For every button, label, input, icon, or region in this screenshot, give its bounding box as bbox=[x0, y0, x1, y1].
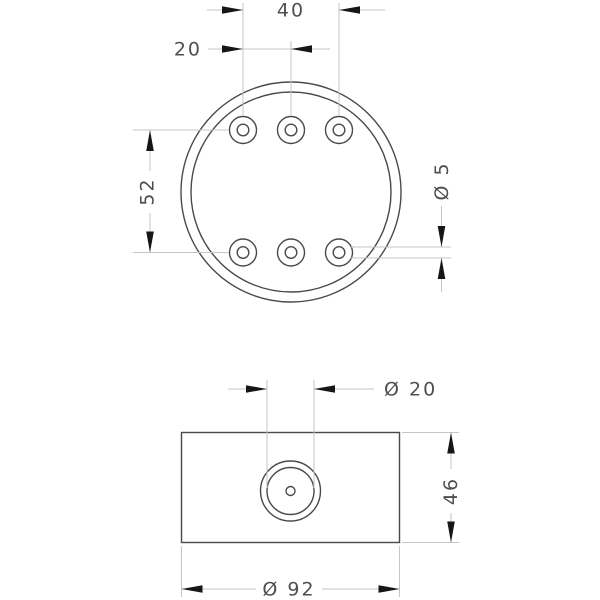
arrowhead bbox=[447, 522, 455, 543]
dimension-label-40: 40 bbox=[277, 0, 305, 22]
arrowhead bbox=[246, 385, 267, 393]
arrowhead bbox=[146, 232, 154, 253]
hole-counterbore bbox=[230, 239, 257, 266]
hole-top-right bbox=[326, 117, 353, 144]
hole-counterbore bbox=[278, 117, 305, 144]
arrowhead bbox=[222, 6, 243, 14]
dimension-dia20: Ø 20 bbox=[228, 379, 437, 489]
hole-bore bbox=[285, 247, 297, 259]
arrowhead bbox=[339, 6, 360, 14]
boss-bore-circle bbox=[267, 468, 314, 515]
hole-top-left bbox=[230, 117, 257, 144]
dimension-dia92: Ø 92 bbox=[182, 546, 400, 600]
hole-bottom-center bbox=[278, 239, 305, 266]
hole-bottom-right bbox=[326, 239, 353, 266]
arrowhead bbox=[314, 385, 335, 393]
arrowhead bbox=[222, 45, 243, 53]
boss-outer-circle bbox=[261, 461, 321, 521]
arrowhead bbox=[291, 45, 312, 53]
hole-counterbore bbox=[326, 117, 353, 144]
dimension-label-20: 20 bbox=[174, 39, 202, 61]
hole-bottom-left bbox=[230, 239, 257, 266]
hole-counterbore bbox=[230, 117, 257, 144]
side-view bbox=[182, 433, 400, 543]
hole-bore bbox=[285, 124, 297, 136]
technical-drawing: 40 20 52 Ø 5 bbox=[0, 0, 600, 600]
hole-counterbore bbox=[326, 239, 353, 266]
drawing-svg: 40 20 52 Ø 5 bbox=[0, 0, 600, 600]
hole-top-center bbox=[278, 117, 305, 144]
dimension-label-46: 46 bbox=[440, 477, 462, 505]
dimension-label-dia92: Ø 92 bbox=[262, 579, 315, 600]
arrowhead bbox=[146, 130, 154, 151]
hole-bore bbox=[333, 124, 345, 136]
flange-chamfer-circle bbox=[191, 92, 391, 292]
dimension-46: 46 bbox=[402, 433, 462, 543]
dimension-label-46-group: 46 bbox=[440, 477, 462, 505]
dimension-label-52-group: 52 bbox=[137, 177, 159, 205]
arrowhead bbox=[379, 585, 400, 593]
body-outline bbox=[182, 433, 400, 543]
hole-bore bbox=[237, 247, 249, 259]
hole-bore bbox=[237, 124, 249, 136]
dimension-label-dia20: Ø 20 bbox=[384, 379, 437, 401]
arrowhead bbox=[438, 258, 446, 279]
dimension-label-dia5-group: Ø 5 bbox=[431, 161, 453, 200]
center-hole bbox=[286, 487, 295, 496]
dimension-label-52: 52 bbox=[137, 177, 159, 205]
arrowhead bbox=[182, 585, 203, 593]
arrowhead bbox=[447, 433, 455, 454]
dimension-label-dia5: Ø 5 bbox=[431, 161, 453, 200]
dimension-20: 20 bbox=[174, 39, 330, 117]
arrowhead bbox=[438, 226, 446, 247]
hole-counterbore bbox=[278, 239, 305, 266]
hole-bore bbox=[333, 247, 345, 259]
